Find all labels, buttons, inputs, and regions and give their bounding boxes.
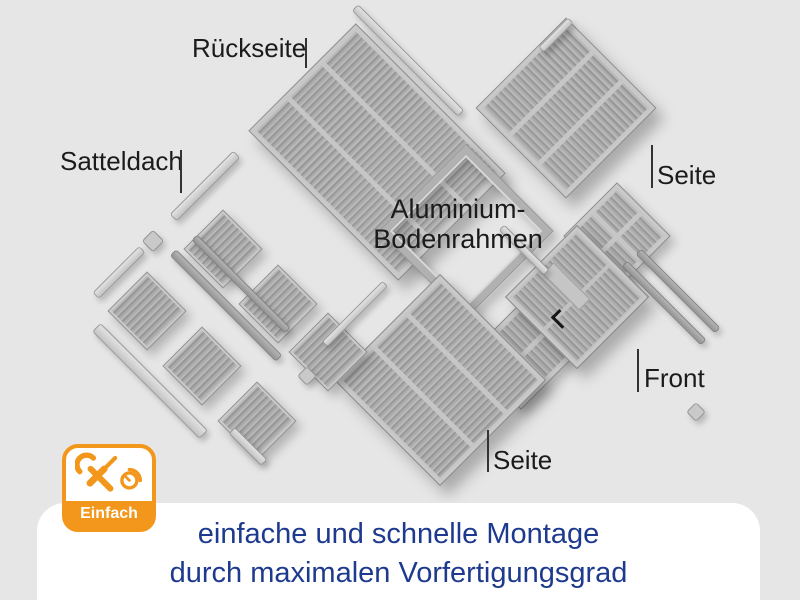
screwdriver-icon	[107, 458, 115, 466]
label-line-seite-right	[651, 145, 653, 188]
front-right-rail-1	[608, 299, 720, 307]
label-line-seite-bottom	[487, 430, 489, 472]
badge-label: Einfach	[66, 501, 152, 528]
label-line-rueckseite	[305, 38, 307, 68]
tools-clock-icon	[75, 452, 143, 498]
roof-ridge-rail-1	[160, 181, 250, 191]
label-bodenrahmen-line2: Bodenrahmen	[350, 224, 566, 254]
corner-cap-2	[300, 369, 314, 383]
label-bodenrahmen: Aluminium- Bodenrahmen	[350, 194, 566, 254]
seite-bottom-edge-rail	[312, 310, 398, 318]
roof-small-rail	[225, 442, 271, 451]
clock-icon	[122, 469, 140, 487]
back-panel-top-rail	[333, 56, 483, 65]
label-seite-right: Seite	[657, 160, 716, 191]
roof-ridge-rail-2	[86, 268, 152, 277]
label-rueckseite: Rückseite	[192, 33, 306, 64]
label-line-front	[637, 349, 639, 392]
caption-line2: durch maximalen Vorfertigungsgrad	[37, 554, 760, 593]
seite-right-cap-rail	[535, 31, 577, 39]
seite-bottom-panel	[366, 306, 514, 454]
product-illustration: Rückseite Satteldach Aluminium- Bodenrah…	[0, 0, 800, 600]
label-front: Front	[644, 363, 705, 394]
roof-edge-rail-1	[151, 301, 301, 310]
roof-panel-4	[120, 284, 174, 338]
label-line-satteldach	[180, 150, 182, 193]
corner-cap-1	[145, 233, 161, 249]
label-seite-bottom: Seite	[493, 445, 552, 476]
corner-cap-3	[689, 405, 703, 419]
roof-front-trim-rail	[74, 375, 226, 387]
seite-right-panel	[503, 45, 629, 171]
front-right-rail-2	[622, 287, 734, 295]
label-bodenrahmen-line1: Aluminium-	[350, 194, 566, 224]
roof-edge-rail-2	[175, 280, 307, 288]
badge-icon-area	[66, 448, 152, 501]
label-satteldach: Satteldach	[60, 146, 183, 177]
einfach-badge: Einfach	[62, 444, 156, 532]
